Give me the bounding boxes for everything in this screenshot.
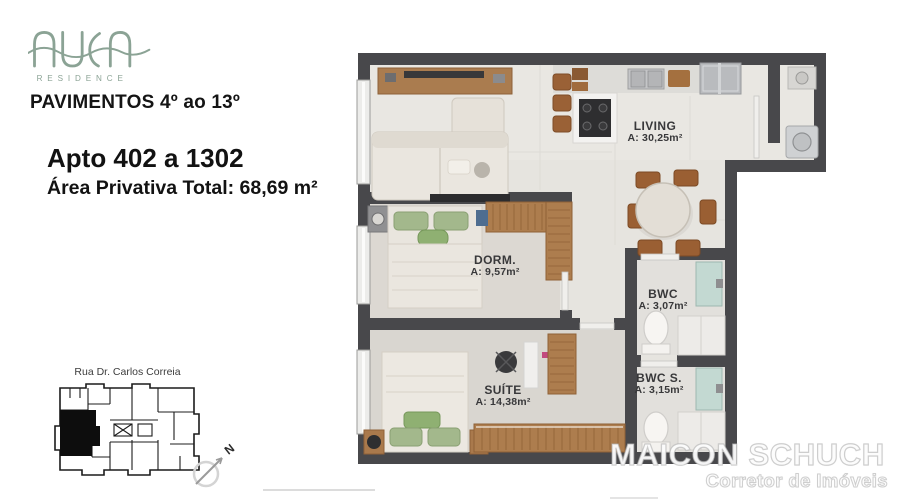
bwcs-toilet <box>642 412 670 452</box>
door-bwc <box>641 254 679 260</box>
bottom-divider-line-right <box>610 497 658 499</box>
suite-bed <box>382 352 468 452</box>
dorm-bed <box>388 206 482 308</box>
floorplan-flyer: RESIDENCE PAVIMENTOS 4º ao 13º Apto 402 … <box>0 0 900 502</box>
kitchen-sink <box>628 69 664 89</box>
fridge <box>700 63 741 94</box>
dining-table <box>636 183 690 237</box>
door-dorm <box>562 272 568 310</box>
bwcs-sink <box>696 368 723 410</box>
dorm-tv-panel <box>430 194 510 202</box>
cutting-board <box>668 70 690 87</box>
door-bwcs <box>641 361 677 367</box>
door-entry <box>754 96 759 158</box>
tv-console <box>378 68 512 94</box>
stove <box>579 99 611 137</box>
window-suite <box>357 350 370 434</box>
windows <box>357 80 370 434</box>
door-suite <box>580 323 614 329</box>
bwc-sink <box>696 262 723 306</box>
window-living <box>357 80 370 184</box>
floorplan-drawing <box>0 0 900 502</box>
dorm-deco-box <box>476 210 488 226</box>
kitchen-counter <box>553 65 701 93</box>
bwc-toilet <box>642 311 670 354</box>
dorm-nightstand <box>368 206 388 232</box>
suite-nightstand-left <box>364 430 384 454</box>
window-dorm <box>357 226 370 304</box>
laundry-counter <box>788 67 816 89</box>
washing-machine <box>786 126 818 158</box>
bottom-divider-line <box>263 489 375 491</box>
